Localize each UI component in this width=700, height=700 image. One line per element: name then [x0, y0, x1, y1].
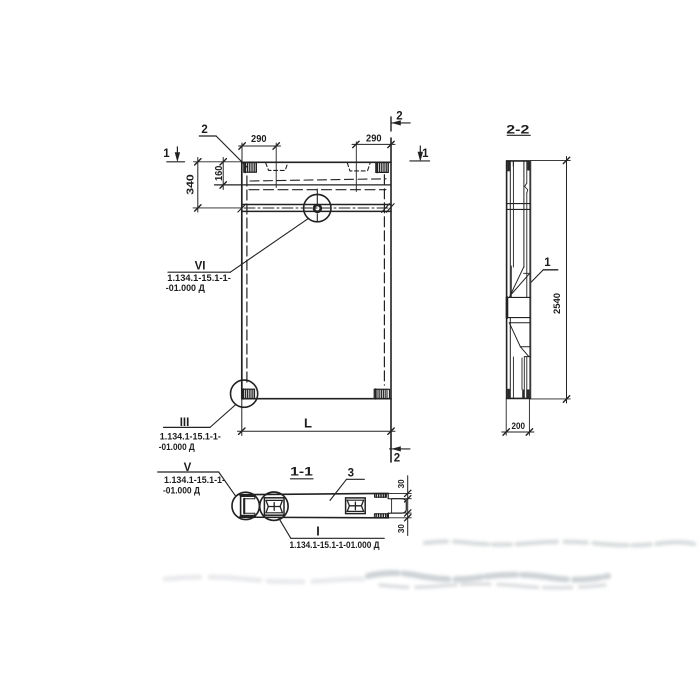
svg-text:1-1: 1-1 [290, 467, 314, 479]
svg-text:1.134.1-15.1-1-: 1.134.1-15.1-1- [167, 273, 231, 283]
svg-text:200: 200 [512, 421, 526, 432]
svg-text:III: III [180, 417, 190, 429]
svg-text:160: 160 [214, 165, 225, 181]
svg-text:1: 1 [544, 257, 551, 269]
svg-text:30: 30 [396, 479, 406, 488]
svg-text:VI: VI [195, 260, 206, 272]
svg-text:2: 2 [394, 453, 400, 465]
svg-text:1.134.1-15.1-1-01.000 Д: 1.134.1-15.1-1-01.000 Д [290, 540, 380, 550]
svg-text:L: L [304, 416, 312, 431]
svg-text:340: 340 [186, 174, 197, 195]
svg-text:-01.000 Д: -01.000 Д [166, 283, 205, 293]
svg-text:-01.000 Д: -01.000 Д [159, 442, 195, 452]
svg-text:1: 1 [422, 148, 429, 160]
svg-text:2: 2 [201, 124, 207, 136]
svg-text:290: 290 [251, 134, 267, 145]
svg-text:1.134.1-15.1-1-: 1.134.1-15.1-1- [160, 431, 221, 441]
svg-text:1: 1 [163, 148, 170, 160]
svg-text:2-2: 2-2 [506, 125, 529, 137]
svg-text:I: I [316, 525, 319, 539]
svg-text:2540: 2540 [552, 293, 562, 314]
svg-text:-01.000 Д: -01.000 Д [163, 485, 200, 495]
svg-text:30: 30 [396, 524, 406, 533]
svg-text:290: 290 [366, 133, 382, 144]
svg-text:3: 3 [348, 468, 354, 480]
svg-text:2: 2 [396, 110, 402, 122]
svg-text:V: V [184, 462, 192, 474]
svg-text:1.134.1-15.1-1-: 1.134.1-15.1-1- [164, 475, 225, 485]
